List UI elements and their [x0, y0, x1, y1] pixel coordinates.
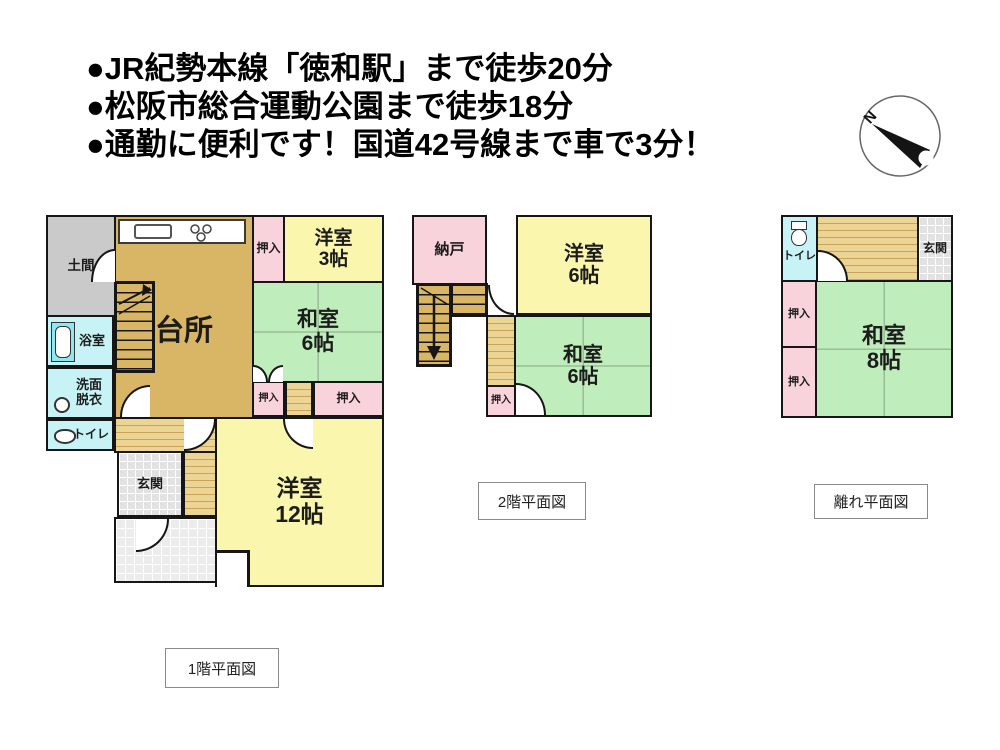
room-name: 和室 — [862, 324, 906, 349]
room-toilet-annex: トイレ — [781, 215, 818, 282]
room-label: 洋室 12帖 — [275, 476, 324, 528]
room-japanese-8: 和室 8帖 — [815, 280, 953, 418]
room-label: 押入 — [491, 395, 511, 406]
stair-down-arrow-icon — [419, 286, 449, 364]
room-label: 洗面 脱衣 — [76, 378, 102, 407]
floorplan-2f: 納戸 洋室 6帖 和室 6帖 押入 — [412, 215, 652, 417]
staircase-1f — [114, 281, 155, 373]
room-bath: 浴室 — [46, 315, 114, 367]
room-label: 浴室 — [79, 334, 105, 349]
plan-caption-annex: 離れ平面図 — [814, 484, 928, 519]
room-western-6: 洋室 6帖 — [516, 215, 652, 315]
toilet-icon — [54, 429, 76, 444]
floorplan-annex: トイレ 玄関 押入 押入 和室 8帖 — [781, 215, 953, 418]
room-label: トイレ — [783, 250, 816, 262]
compass-needle-icon — [858, 94, 942, 178]
room-label: 洋室 6帖 — [564, 243, 604, 288]
property-highlights: ●JR紀勢本線「徳和駅」まで徒歩20分 ●松阪市総合運動公園まで徒歩18分 ●通… — [86, 50, 714, 164]
room-closet-annex-top: 押入 — [781, 280, 817, 348]
highlight-line-2: ●松阪市総合運動公園まで徒歩18分 — [86, 88, 714, 126]
room-label: 玄関 — [137, 477, 163, 492]
room-label: 押入 — [256, 242, 280, 255]
stair-direction-icon — [117, 284, 152, 370]
room-label: 土間 — [68, 258, 95, 273]
room-size: 6帖 — [564, 265, 604, 287]
room-entrance-annex: 玄関 — [917, 215, 953, 282]
door-arc — [488, 285, 514, 315]
room-toilet-1f: トイレ — [46, 419, 114, 451]
highlight-line-3: ●通勤に便利です！国道42号線まで車で3分！ — [86, 126, 714, 164]
room-closet-2f: 押入 — [486, 385, 516, 417]
room-size: 6帖 — [563, 366, 603, 388]
room-name: 和室 — [563, 344, 603, 366]
compass: N — [858, 94, 942, 178]
kitchen-counter — [118, 219, 246, 244]
room-name: 洗面 — [76, 378, 102, 393]
room-label: 玄関 — [923, 242, 947, 255]
room-size: 3帖 — [314, 249, 352, 270]
room-label: 和室 6帖 — [563, 344, 603, 389]
room-entrance-1f: 玄関 — [117, 451, 183, 517]
plan-caption-2f: 2階平面図 — [478, 482, 586, 520]
room-label: 和室 6帖 — [297, 308, 339, 355]
caption-label: 2階平面図 — [498, 491, 566, 512]
room-western-3: 洋室 3帖 — [283, 215, 384, 283]
toilet-bowl — [791, 229, 807, 246]
room-name: 和室 — [297, 308, 339, 332]
entrance-side-hall — [183, 451, 217, 517]
staircase-2f-landing — [450, 283, 488, 317]
room-name: 洋室 — [275, 476, 324, 502]
room-japanese-6-1f: 和室 6帖 — [252, 281, 384, 383]
room-label: 押入 — [788, 308, 810, 320]
room-storage-nando: 納戸 — [412, 215, 487, 285]
floorplan-1f: 土間 台所 押入 洋室 3帖 和室 6帖 — [46, 215, 386, 587]
room-name: 脱衣 — [76, 393, 102, 408]
room-size: 12帖 — [275, 502, 324, 528]
washbasin-icon — [54, 397, 70, 413]
room-closet-1f-right: 押入 — [313, 381, 384, 417]
toilet-icon — [791, 221, 809, 249]
caption-label: 離れ平面図 — [833, 491, 908, 512]
stove-icon — [186, 222, 218, 242]
wall-notch — [217, 550, 250, 587]
room-closet-1f-left: 押入 — [252, 381, 285, 417]
room-closet-1f-top: 押入 — [252, 215, 285, 283]
room-name: 洋室 — [314, 228, 352, 249]
room-label: 和室 8帖 — [862, 324, 906, 373]
highlight-line-1: ●JR紀勢本線「徳和駅」まで徒歩20分 — [86, 50, 714, 88]
staircase-2f — [416, 283, 452, 367]
closet-hall-strip — [285, 381, 313, 417]
room-name: 洋室 — [564, 243, 604, 265]
room-label: トイレ — [73, 428, 109, 441]
room-label: 洋室 3帖 — [314, 228, 352, 271]
room-label: 押入 — [788, 376, 810, 388]
room-closet-annex-bottom: 押入 — [781, 346, 817, 418]
bathtub-icon — [51, 322, 75, 362]
room-label: 押入 — [336, 392, 360, 405]
plan-caption-1f: 1階平面図 — [165, 648, 279, 688]
room-size: 8帖 — [862, 349, 906, 374]
caption-label: 1階平面図 — [188, 658, 256, 679]
room-label: 押入 — [259, 393, 279, 404]
room-washroom: 洗面 脱衣 — [46, 367, 114, 419]
room-size: 6帖 — [297, 332, 339, 356]
room-label: 台所 — [155, 315, 213, 347]
kitchen-sink-icon — [134, 224, 172, 239]
hallway-2f — [486, 315, 516, 387]
room-label: 納戸 — [434, 242, 464, 259]
